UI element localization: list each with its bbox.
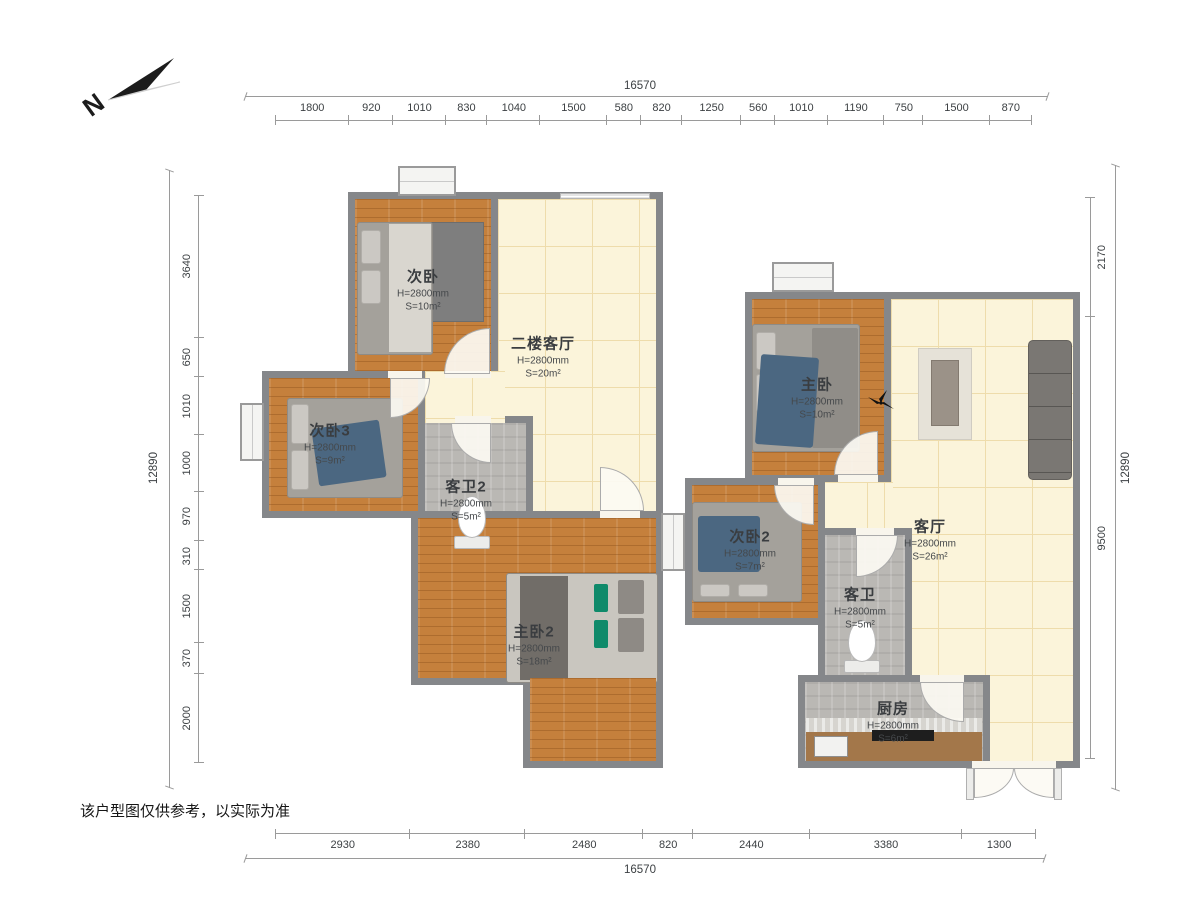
room-name: 客厅 [904,517,956,537]
dim-tick [194,195,204,196]
compass-letter: N [78,87,110,117]
room-area: S=6m² [867,732,919,745]
dimension-column-right: 21709500 [1090,197,1113,759]
dim-segment: 870 [990,102,1032,120]
door-gap [388,371,422,378]
room-area: S=18m² [508,655,560,668]
dim-total-line-bottom [245,858,1045,859]
dim-segment-value: 9500 [1096,526,1108,550]
dim-segment-value: 2170 [1096,245,1108,269]
room-height: H=2800mm [304,441,356,454]
door-gap [972,761,1056,768]
dim-segment-value: 1250 [682,102,741,114]
ceiling-fan-icon [866,388,896,418]
dim-segment: 1010 [176,377,198,434]
sofa [1028,340,1072,480]
dim-segment: 920 [349,102,393,120]
dim-tick [275,829,276,839]
room-area: S=5m² [834,618,886,631]
dim-segment-value: 1500 [181,594,193,618]
dim-segment: 820 [643,834,692,858]
room-label: 主卧2 H=2800mm S=18m² [508,622,560,668]
balcony-door-right [1014,768,1054,798]
pillow [618,618,644,652]
room-area: S=26m² [904,550,956,563]
dim-total-left: 12890 [148,438,160,498]
dim-segment-value: 1010 [775,102,828,114]
room-label: 客卫 H=2800mm S=5m² [834,585,886,631]
dim-segment: 1500 [540,102,606,120]
room-label: 次卧3 H=2800mm S=9m² [304,421,356,467]
pillow [361,230,381,264]
bay-window [661,513,685,571]
dim-segment: 2480 [525,834,643,858]
dim-segment-value: 920 [349,102,393,114]
dimension-row-top: 1800920101083010401500580820125056010101… [275,102,1032,121]
dim-segment: 1190 [828,102,885,120]
bay-window [398,166,456,196]
dim-segment: 2930 [275,834,410,858]
dim-segment: 1250 [682,102,741,120]
dim-segment-value: 2000 [181,706,193,730]
dim-segment: 560 [741,102,775,120]
compass-north-icon: N [78,42,198,117]
room-height: H=2800mm [867,719,919,732]
room-height: H=2800mm [397,287,449,300]
floor-patch-wood [530,678,656,692]
room-name: 客卫 [834,585,886,605]
dim-segment: 2000 [176,674,198,763]
dim-segment: 580 [607,102,641,120]
dim-segment-value: 1040 [487,102,540,114]
door-gap [838,475,878,482]
dim-total-line-right [1115,165,1116,790]
room-name: 次卧3 [304,421,356,441]
kitchen-sink [814,736,848,757]
pillow [618,580,644,614]
floorplan-canvas: N 16570 16570 12890 12890 18009201010830… [0,0,1200,900]
dim-segment: 3640 [176,195,198,338]
room-height: H=2800mm [440,497,492,510]
pillow [594,584,608,612]
dim-segment: 830 [446,102,487,120]
dim-segment: 310 [176,541,198,569]
dim-segment-value: 750 [884,102,923,114]
dim-segment-value: 370 [181,649,193,667]
bay-window [240,403,264,461]
coffee-table [931,360,959,426]
dim-segment-value: 1190 [828,102,885,114]
dim-total-line-left [169,170,170,788]
dim-segment: 1500 [176,570,198,643]
dim-segment-value: 2480 [525,834,643,851]
dim-total-bottom: 16570 [598,864,682,876]
dim-segment-value: 830 [446,102,487,114]
dim-segment: 1010 [393,102,446,120]
dim-segment: 370 [176,643,198,673]
dim-segment: 1800 [275,102,349,120]
dim-segment: 3380 [810,834,963,858]
room-label: 客厅 H=2800mm S=26m² [904,517,956,563]
dim-segment-value: 310 [181,547,193,565]
dim-segment-value: 580 [607,102,641,114]
dimension-column-left: 36406501010100097031015003702000 [176,195,199,763]
dim-segment: 2440 [693,834,810,858]
room-label: 主卧 H=2800mm S=10m² [791,375,843,421]
room-name: 厨房 [867,699,919,719]
dim-segment-value: 1010 [393,102,446,114]
door-frame [1054,768,1062,800]
room-label: 客卫2 H=2800mm S=5m² [440,477,492,523]
room-name: 主卧2 [508,622,560,642]
dim-segment: 820 [641,102,682,120]
room-height: H=2800mm [508,642,560,655]
pillow [700,584,730,597]
dim-segment-value: 820 [641,102,682,114]
room-name: 次卧2 [724,527,776,547]
door-gap [778,478,814,485]
dim-tick [1031,115,1032,125]
wall-window [560,193,650,199]
compass-arrow-dark [108,58,174,100]
dim-segment: 9500 [1091,317,1113,759]
dim-tick [275,115,276,125]
door-gap [920,675,964,682]
dim-segment-value: 650 [181,348,193,366]
room-area: S=10m² [791,408,843,421]
door-frame [966,768,974,800]
room-height: H=2800mm [904,537,956,550]
dim-segment-value: 1300 [962,834,1036,851]
balcony-door-left [974,768,1014,798]
dim-segment: 2380 [410,834,525,858]
dim-total-top: 16570 [598,80,682,92]
dim-segment-value: 1500 [923,102,989,114]
dim-segment: 1040 [487,102,540,120]
dim-segment: 650 [176,338,198,377]
dim-segment-value: 1800 [275,102,349,114]
dim-segment-value: 3640 [181,254,193,278]
dim-total-line-top [245,96,1048,97]
room-area: S=5m² [440,510,492,523]
dim-segment: 750 [884,102,923,120]
dim-segment-value: 2440 [693,834,810,851]
dim-tick [1035,829,1036,839]
room-area: S=20m² [511,367,575,380]
dim-segment: 1000 [176,435,198,492]
dim-segment: 1500 [923,102,989,120]
door-gap [600,511,640,518]
pillow [361,270,381,304]
dim-segment-value: 3380 [810,834,963,851]
dim-segment-value: 820 [643,834,692,851]
room-area: S=7m² [724,560,776,573]
disclaimer-text: 该户型图仅供参考，以实际为准 [80,800,290,821]
pillow [738,584,768,597]
room-name: 客卫2 [440,477,492,497]
dim-segment: 970 [176,492,198,542]
dim-segment-value: 970 [181,507,193,525]
door-gap [455,416,491,423]
room-height: H=2800mm [834,605,886,618]
room-height: H=2800mm [511,354,575,367]
dimension-row-bottom: 293023802480820244033801300 [275,833,1036,858]
dim-tick [1085,197,1095,198]
dim-tick [194,762,204,763]
dim-segment-value: 2380 [410,834,525,851]
dim-segment-value: 1010 [181,394,193,418]
room-label: 二楼客厅 H=2800mm S=20m² [511,334,575,380]
dim-segment-value: 1000 [181,451,193,475]
door-gap [856,528,894,535]
dim-total-right: 12890 [1120,438,1132,498]
dim-segment-value: 870 [990,102,1032,114]
room-height: H=2800mm [791,395,843,408]
dim-segment-value: 2930 [275,834,410,851]
room-height: H=2800mm [724,547,776,560]
dim-segment: 2170 [1091,197,1113,317]
dim-segment: 1010 [775,102,828,120]
room-name: 二楼客厅 [511,334,575,354]
room-area: S=9m² [304,454,356,467]
room-area: S=10m² [397,300,449,313]
pillow [594,620,608,648]
dim-tick [1085,758,1095,759]
room-label: 次卧 H=2800mm S=10m² [397,267,449,313]
room-label: 次卧2 H=2800mm S=7m² [724,527,776,573]
dim-segment-value: 560 [741,102,775,114]
room-name: 次卧 [397,267,449,287]
dim-segment: 1300 [962,834,1036,858]
dim-segment-value: 1500 [540,102,606,114]
room-label: 厨房 H=2800mm S=6m² [867,699,919,745]
room-name: 主卧 [791,375,843,395]
bay-window [772,262,834,292]
